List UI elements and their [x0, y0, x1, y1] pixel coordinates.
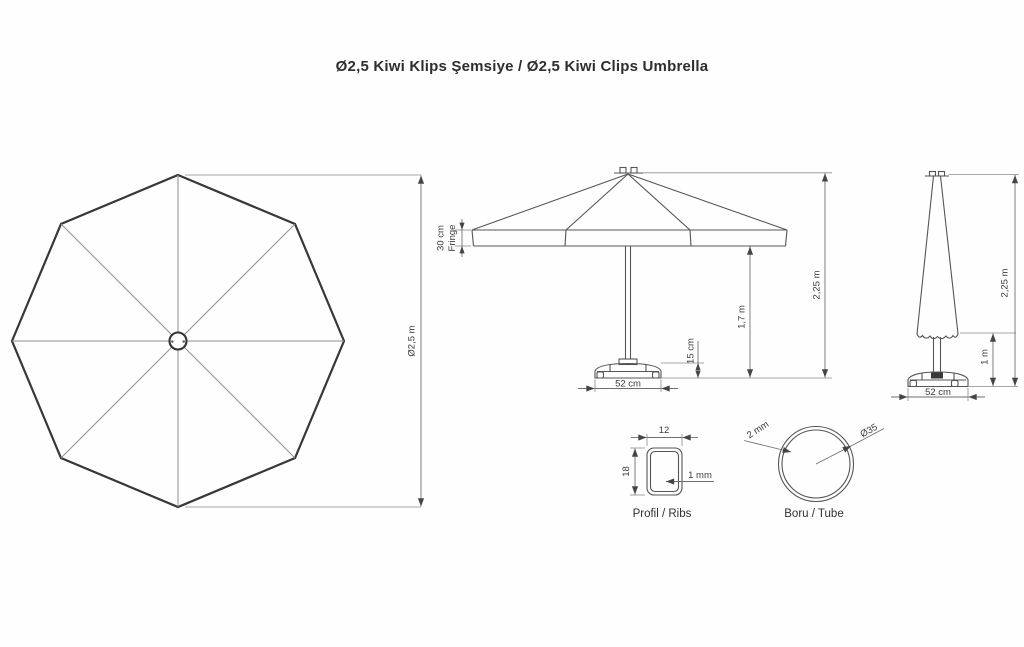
rib-line — [61, 224, 178, 341]
canopy-edge — [472, 174, 628, 230]
fringe-band-left — [472, 230, 474, 246]
fringe-rib-seam — [690, 230, 691, 246]
fringe-dimension: 30 cm Fringe — [436, 219, 471, 257]
tube-caption: Boru / Tube — [784, 508, 843, 520]
radius-line — [816, 446, 851, 464]
diameter-dimension-label: Ø2,5 m — [407, 325, 418, 356]
canopy-edge — [917, 176, 934, 334]
canopy-rib — [566, 174, 628, 230]
hub-pin — [182, 340, 185, 343]
closed-canopy-label: 1 m — [980, 349, 991, 365]
base-width-label: 52 cm — [925, 387, 951, 398]
fringe-band-right — [786, 230, 788, 246]
base-foot — [653, 372, 660, 378]
technical-drawing-page: Ø2,5 Kiwi Klips Şemsiye / Ø2,5 Kiwi Clip… — [0, 0, 1024, 647]
canopy-rib — [628, 174, 690, 230]
front-view: 30 cm Fringe 15 cm 1,7 m 2,25 m — [436, 168, 832, 393]
finial-clip — [939, 172, 945, 177]
side-view: 1 m 2,25 m 52 cm — [891, 172, 1019, 402]
arrowhead — [459, 246, 464, 253]
profile-height-dimension: 18 — [621, 448, 645, 495]
leader-line — [744, 441, 791, 453]
clearance-label: 1,7 m — [737, 305, 748, 329]
ground-reference — [643, 173, 832, 378]
base-width-dimension: 52 cm — [578, 379, 678, 393]
umbrella-base — [595, 364, 661, 379]
tube-diameter-label: Ø35 — [858, 422, 879, 440]
tube-wall-label: 2 mm — [745, 419, 771, 441]
rib-line — [61, 341, 178, 458]
umbrella-technical-drawing: Ø2,5 m — [0, 0, 1024, 647]
base-width-dimension: 52 cm — [891, 387, 985, 401]
base-height-label: 15 cm — [686, 338, 697, 364]
finial-cap — [925, 172, 949, 177]
profile-outer-wall — [647, 448, 682, 495]
profile-wall-label: 1 mm — [688, 470, 712, 481]
finial-clip — [930, 172, 936, 177]
canopy-edge — [941, 176, 959, 334]
closed-canopy — [917, 176, 958, 339]
top-view: Ø2,5 m — [12, 175, 421, 507]
tube-detail: 2 mm Ø35 Boru / Tube — [744, 419, 884, 520]
base-foot — [597, 372, 604, 378]
canopy-edge — [628, 174, 787, 230]
profile-wall-thickness-callout: 1 mm — [666, 470, 714, 482]
rib-line — [178, 341, 295, 458]
profile-caption: Profil / Ribs — [633, 508, 692, 520]
total-height-dimension: 2,25 m — [1000, 175, 1015, 386]
total-height-label: 2,25 m — [812, 270, 823, 299]
rib-profile-detail: 12 18 1 mm Profil / Ribs — [621, 425, 714, 520]
clearance-dimension: 1,7 m — [737, 247, 750, 378]
profile-height-label: 18 — [621, 466, 632, 477]
hub-pin — [171, 340, 174, 343]
closed-canopy-dimension: 1 m — [980, 334, 993, 387]
base-height-dimension: 15 cm — [661, 338, 704, 378]
arrowhead — [695, 371, 700, 378]
profile-inner-wall — [651, 452, 679, 492]
total-height-dimension: 2,25 m — [812, 173, 825, 377]
fringe-size-label: 30 cm — [436, 225, 447, 251]
finial-cap — [614, 168, 643, 174]
pole-clamp — [931, 373, 943, 379]
rib-line — [178, 224, 295, 341]
base-foot — [952, 381, 959, 387]
fringe-rib-seam — [565, 230, 566, 246]
profile-width-label: 12 — [659, 425, 670, 436]
arrowhead — [459, 223, 464, 230]
center-pole — [619, 246, 637, 365]
finial-clip — [620, 168, 626, 174]
profile-width-dimension: 12 — [631, 425, 698, 446]
tube-wall-thickness-callout: 2 mm — [744, 419, 791, 452]
base-body — [595, 364, 661, 379]
total-height-label: 2,25 m — [1000, 268, 1011, 297]
fringe-word-label: Fringe — [447, 225, 458, 252]
base-width-label: 52 cm — [615, 379, 641, 390]
base-foot — [910, 381, 917, 387]
open-canopy — [472, 174, 787, 246]
canopy-fold-edge — [917, 334, 958, 339]
finial-clip — [631, 168, 637, 174]
